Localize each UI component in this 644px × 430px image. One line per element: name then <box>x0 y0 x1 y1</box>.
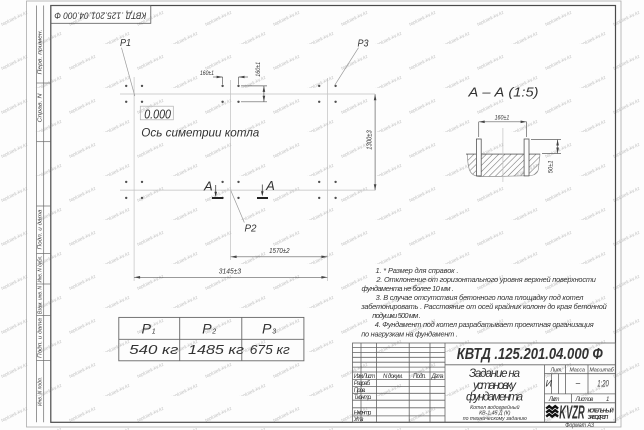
svg-text:Лист: Лист <box>548 397 560 403</box>
svg-text:3145±3: 3145±3 <box>219 266 241 275</box>
svg-text:Подп. и дата: Подп. и дата <box>38 318 44 358</box>
svg-text:Справ. N: Справ. N <box>38 93 44 122</box>
svg-text:Масштаб: Масштаб <box>590 368 615 374</box>
svg-text:P3: P3 <box>358 39 369 50</box>
svg-text:1300±3: 1300±3 <box>364 130 373 150</box>
svg-text:КВТД .125.201.04.000 Ф: КВТД .125.201.04.000 Ф <box>54 10 146 21</box>
svg-text:Масса: Масса <box>570 368 585 374</box>
svg-text:забетонировать . Расстояние от: забетонировать . Расстояние от осей край… <box>360 302 607 311</box>
svg-text:А: А <box>203 178 213 193</box>
svg-text:P: P <box>262 321 272 337</box>
svg-text:фундамента не более 10 мм .: фундамента не более 10 мм . <box>362 284 454 293</box>
svg-text:3: 3 <box>272 329 276 336</box>
svg-text:P: P <box>142 321 152 337</box>
svg-text:2: 2 <box>211 329 216 336</box>
svg-text:Подп. и дата: Подп. и дата <box>38 209 44 249</box>
svg-text:1. * Размер для справок .: 1. * Размер для справок . <box>376 266 459 275</box>
svg-text:160±1: 160±1 <box>255 62 262 77</box>
svg-text:1:20: 1:20 <box>597 379 609 389</box>
svg-text:P2: P2 <box>245 224 257 235</box>
svg-text:Подп.: Подп. <box>413 374 426 380</box>
svg-text:установку: установку <box>472 380 517 392</box>
svg-text:KVZR: KVZR <box>559 403 585 423</box>
svg-text:2. Отклонение от горизонтально: 2. Отклонение от горизонтального уровня … <box>375 275 596 284</box>
svg-text:Перв. примен.: Перв. примен. <box>38 30 44 75</box>
svg-text:Н.контр.: Н.контр. <box>354 411 372 417</box>
svg-text:КВТД .125.201.04.000 Ф: КВТД .125.201.04.000 Ф <box>457 346 603 363</box>
svg-text:Лит.: Лит. <box>550 368 563 374</box>
svg-text:540 кг: 540 кг <box>129 342 179 357</box>
svg-text:1: 1 <box>606 397 609 403</box>
svg-text:160±1: 160±1 <box>200 70 214 77</box>
svg-text:по нагрузкам на фундамент .: по нагрузкам на фундамент . <box>361 330 458 339</box>
svg-text:50±1: 50±1 <box>548 160 555 173</box>
svg-text:3. В случае отсутствия бетонно: 3. В случае отсутствия бетонного пола пл… <box>376 293 585 302</box>
svg-text:И: И <box>546 379 553 389</box>
svg-text:Инв. N дубл.: Инв. N дубл. <box>38 256 44 283</box>
svg-text:160±1: 160±1 <box>495 115 510 122</box>
svg-text:Взам. инв. N: Взам. инв. N <box>38 286 44 314</box>
svg-text:А: А <box>265 178 275 193</box>
svg-text:Формат А3: Формат А3 <box>565 423 594 429</box>
svg-text:подушки 500 мм .: подушки 500 мм . <box>372 311 421 320</box>
svg-text:1485 кг: 1485 кг <box>188 342 245 357</box>
svg-text:P1: P1 <box>120 38 131 49</box>
svg-text:ЗАВОД РЭП: ЗАВОД РЭП <box>588 415 609 421</box>
svg-text:4. Фундамент под котел разраба: 4. Фундамент под котел разрабатывает про… <box>375 320 594 329</box>
svg-text:КОТЕЛЬНЫЙ: КОТЕЛЬНЫЙ <box>588 407 614 415</box>
svg-text:1: 1 <box>152 329 156 336</box>
svg-text:Инв. N подл.: Инв. N подл. <box>38 377 44 406</box>
svg-text:Утв.: Утв. <box>353 417 364 423</box>
svg-text:0.000: 0.000 <box>144 108 171 122</box>
svg-text:N докум.: N докум. <box>383 374 403 380</box>
svg-text:P: P <box>202 321 212 337</box>
svg-text:Пров.: Пров. <box>354 388 366 394</box>
svg-text:675 кг: 675 кг <box>250 342 291 357</box>
svg-text:1570±2: 1570±2 <box>269 246 290 255</box>
svg-text:Задание на: Задание на <box>469 368 520 380</box>
svg-text:Дата: Дата <box>431 374 445 380</box>
svg-text:фундамента: фундамента <box>466 392 523 404</box>
svg-text:–: – <box>575 378 581 387</box>
svg-text:Т.контр.: Т.контр. <box>354 395 372 401</box>
svg-text:по техническому заданию: по техническому заданию <box>463 416 527 422</box>
svg-text:Разраб.: Разраб. <box>354 381 371 387</box>
svg-text:Ось симетрии котла: Ось симетрии котла <box>141 125 259 139</box>
svg-text:А – А (1:5): А – А (1:5) <box>467 84 538 99</box>
svg-text:Изм.Лист: Изм.Лист <box>354 374 376 380</box>
